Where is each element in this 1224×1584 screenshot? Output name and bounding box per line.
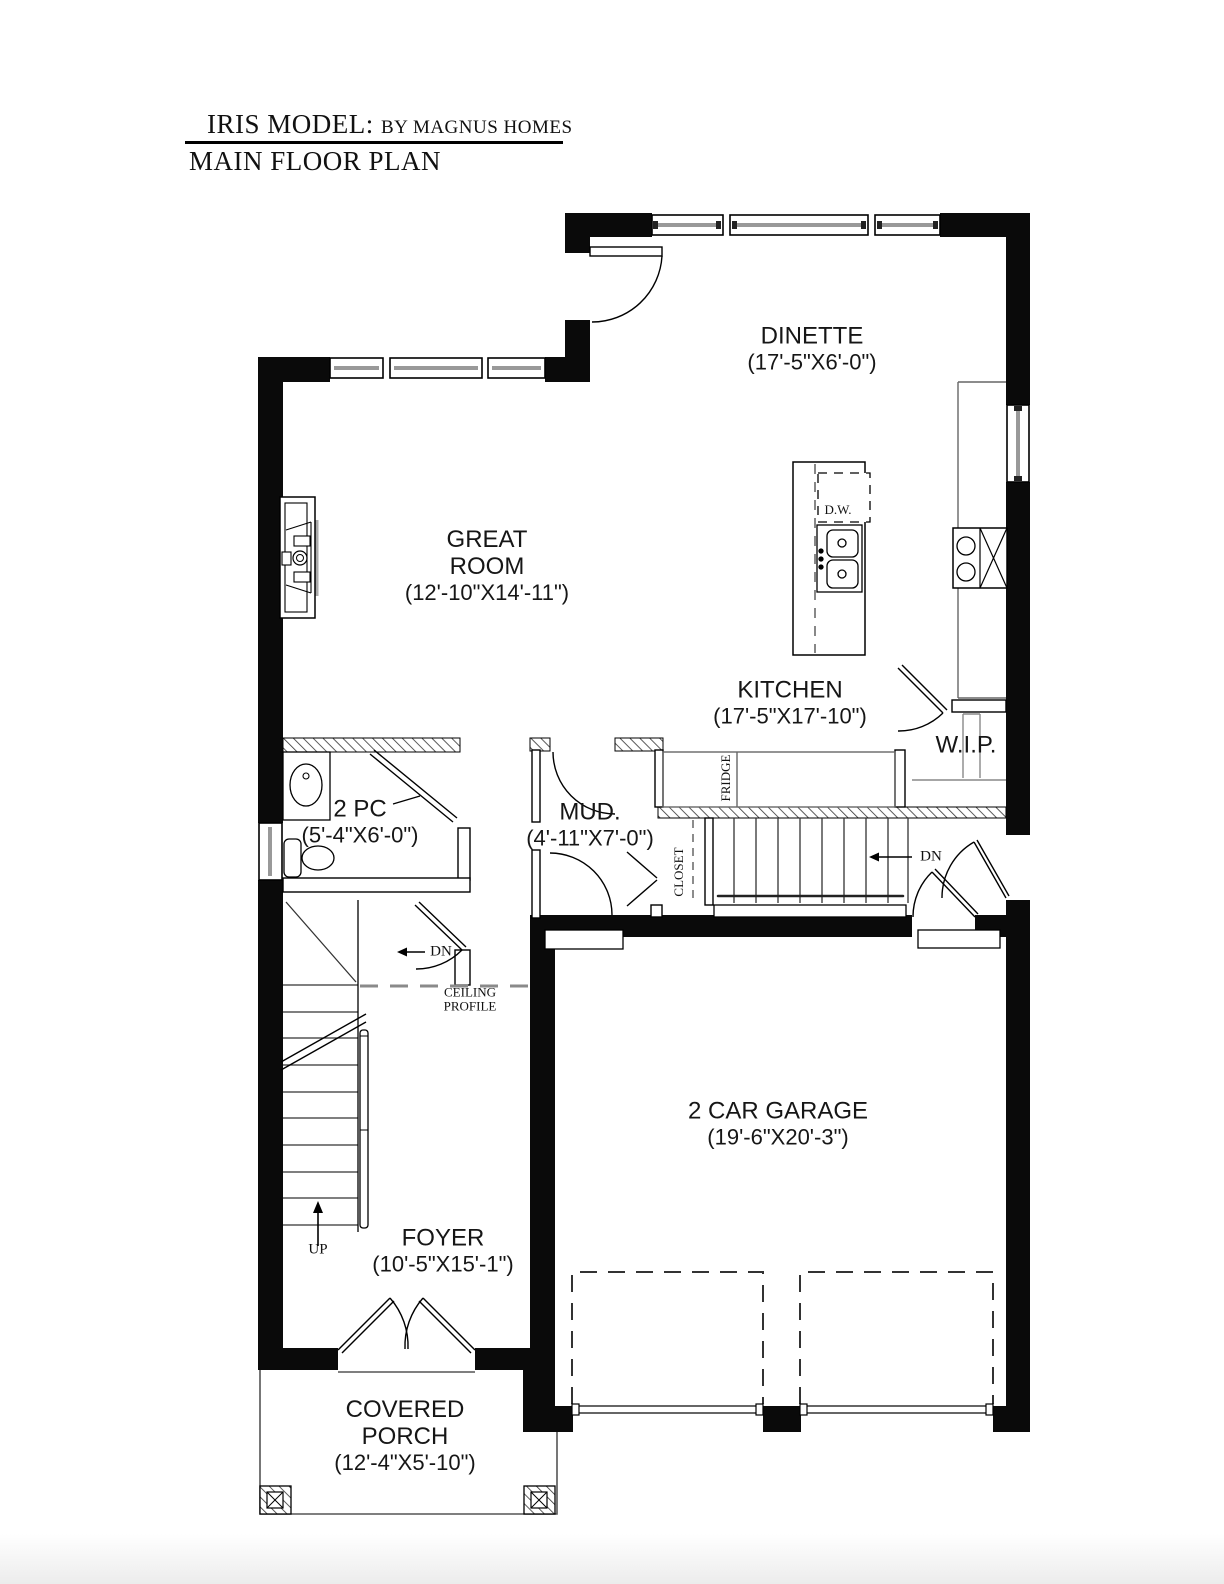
doors [338,247,1009,1353]
kitchen-side-window [1007,405,1029,482]
closet-label: CLOSET [671,847,687,896]
page-edge-shading [0,1534,1224,1584]
room-label-dinette: DINETTE (17'-5"X6'-0") [747,323,876,375]
stair-break-line [281,1014,366,1070]
porch-column-right [524,1486,555,1514]
up-label: UP [308,1242,327,1259]
room-label-powder: 2 PC (5'-4"X6'-0") [302,796,419,848]
room-label-great-room: GREAT ROOM (12'-10"X14'-11") [405,527,569,605]
room-label-pantry: W.I.P. [936,733,997,760]
builder-name: BY MAGNUS HOMES [381,117,573,138]
fireplace [280,497,317,618]
model-name: IRIS MODEL: [207,109,374,139]
title-block: IRIS MODEL: BY MAGNUS HOMES MAIN FLOOR P… [185,110,573,177]
side-entry-door [942,840,1009,898]
rear-counter-and-fridge [663,752,895,807]
room-label-garage: 2 CAR GARAGE (19'-6"X20'-3") [688,1098,868,1150]
room-label-foyer: FOYER (10'-5"X15'-1") [372,1225,513,1277]
front-entry-double-doors [338,1298,475,1353]
toilet-bowl [302,846,334,870]
mud-room-door-lower [550,853,612,915]
dn-label-basement: DN [920,849,942,866]
room-label-porch: COVERED PORCH (12'-4"X5'-10") [334,1397,475,1475]
plan-title: IRIS MODEL: BY MAGNUS HOMES [185,110,573,140]
ceiling-profile-label: CEILING PROFILE [429,986,511,1015]
dishwasher-label: D.W. [825,502,852,518]
dinette-top-window [652,215,940,235]
pantry-door [898,665,947,731]
garage-pier-left [545,930,623,949]
garage-door-tracks-dashed [572,1272,993,1404]
basement-stairs [693,818,908,917]
dinette-patio-door [590,247,662,322]
closet-bifold-doors [627,852,662,917]
room-label-mud: MUD. (4'-11"X7'-0") [526,799,654,851]
sheet-name: MAIN FLOOR PLAN [185,146,573,177]
dn-label-hall: DN [430,944,452,961]
up-arrow [313,1201,323,1246]
garage-features [545,930,1000,1415]
garage-pier-right [918,930,1000,948]
dn-arrow-basement [869,853,912,862]
stair-handrail-up [360,1030,368,1228]
title-underline [185,141,563,144]
stair-half-wall [714,905,906,917]
powder-room-window [259,823,282,880]
winder-tread [286,902,356,982]
fridge-label: FRIDGE [718,755,734,802]
dn-arrow-hall [397,948,425,957]
room-label-kitchen: KITCHEN (17'-5"X17'-10") [713,677,867,729]
toilet-tank [284,839,301,877]
stairs-up [281,900,368,1246]
great-room-window [330,358,545,378]
range-cooktop [953,528,1007,588]
porch-column-left [260,1486,291,1514]
floor-plan-drawing [0,0,1224,1584]
